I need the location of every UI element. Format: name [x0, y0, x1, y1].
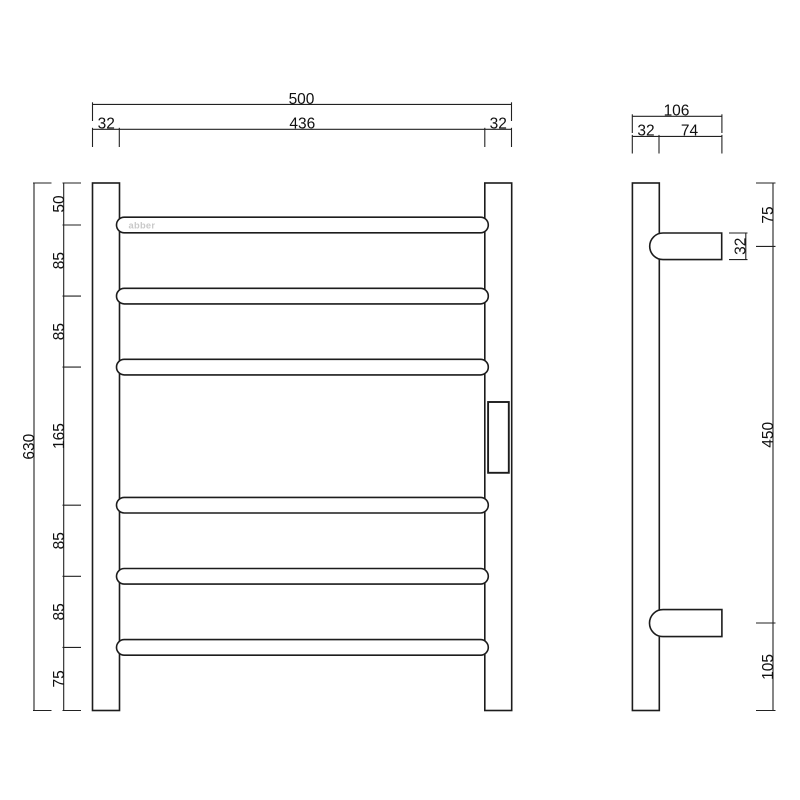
svg-text:165: 165 — [51, 423, 68, 449]
svg-text:75: 75 — [760, 206, 777, 223]
svg-text:500: 500 — [289, 91, 315, 108]
svg-text:85: 85 — [51, 532, 68, 549]
svg-text:450: 450 — [760, 421, 777, 447]
svg-text:85: 85 — [51, 603, 68, 620]
svg-text:105: 105 — [760, 654, 777, 680]
svg-text:85: 85 — [51, 252, 68, 269]
svg-text:74: 74 — [681, 123, 699, 140]
svg-text:32: 32 — [733, 238, 750, 255]
svg-text:85: 85 — [51, 323, 68, 340]
svg-text:75: 75 — [51, 670, 68, 687]
svg-text:436: 436 — [289, 116, 315, 133]
svg-text:32: 32 — [490, 116, 507, 133]
svg-text:abber: abber — [129, 221, 156, 231]
svg-text:630: 630 — [21, 433, 38, 459]
svg-text:106: 106 — [664, 103, 690, 120]
svg-text:32: 32 — [637, 123, 654, 140]
svg-text:50: 50 — [51, 195, 68, 213]
svg-text:32: 32 — [98, 116, 115, 133]
